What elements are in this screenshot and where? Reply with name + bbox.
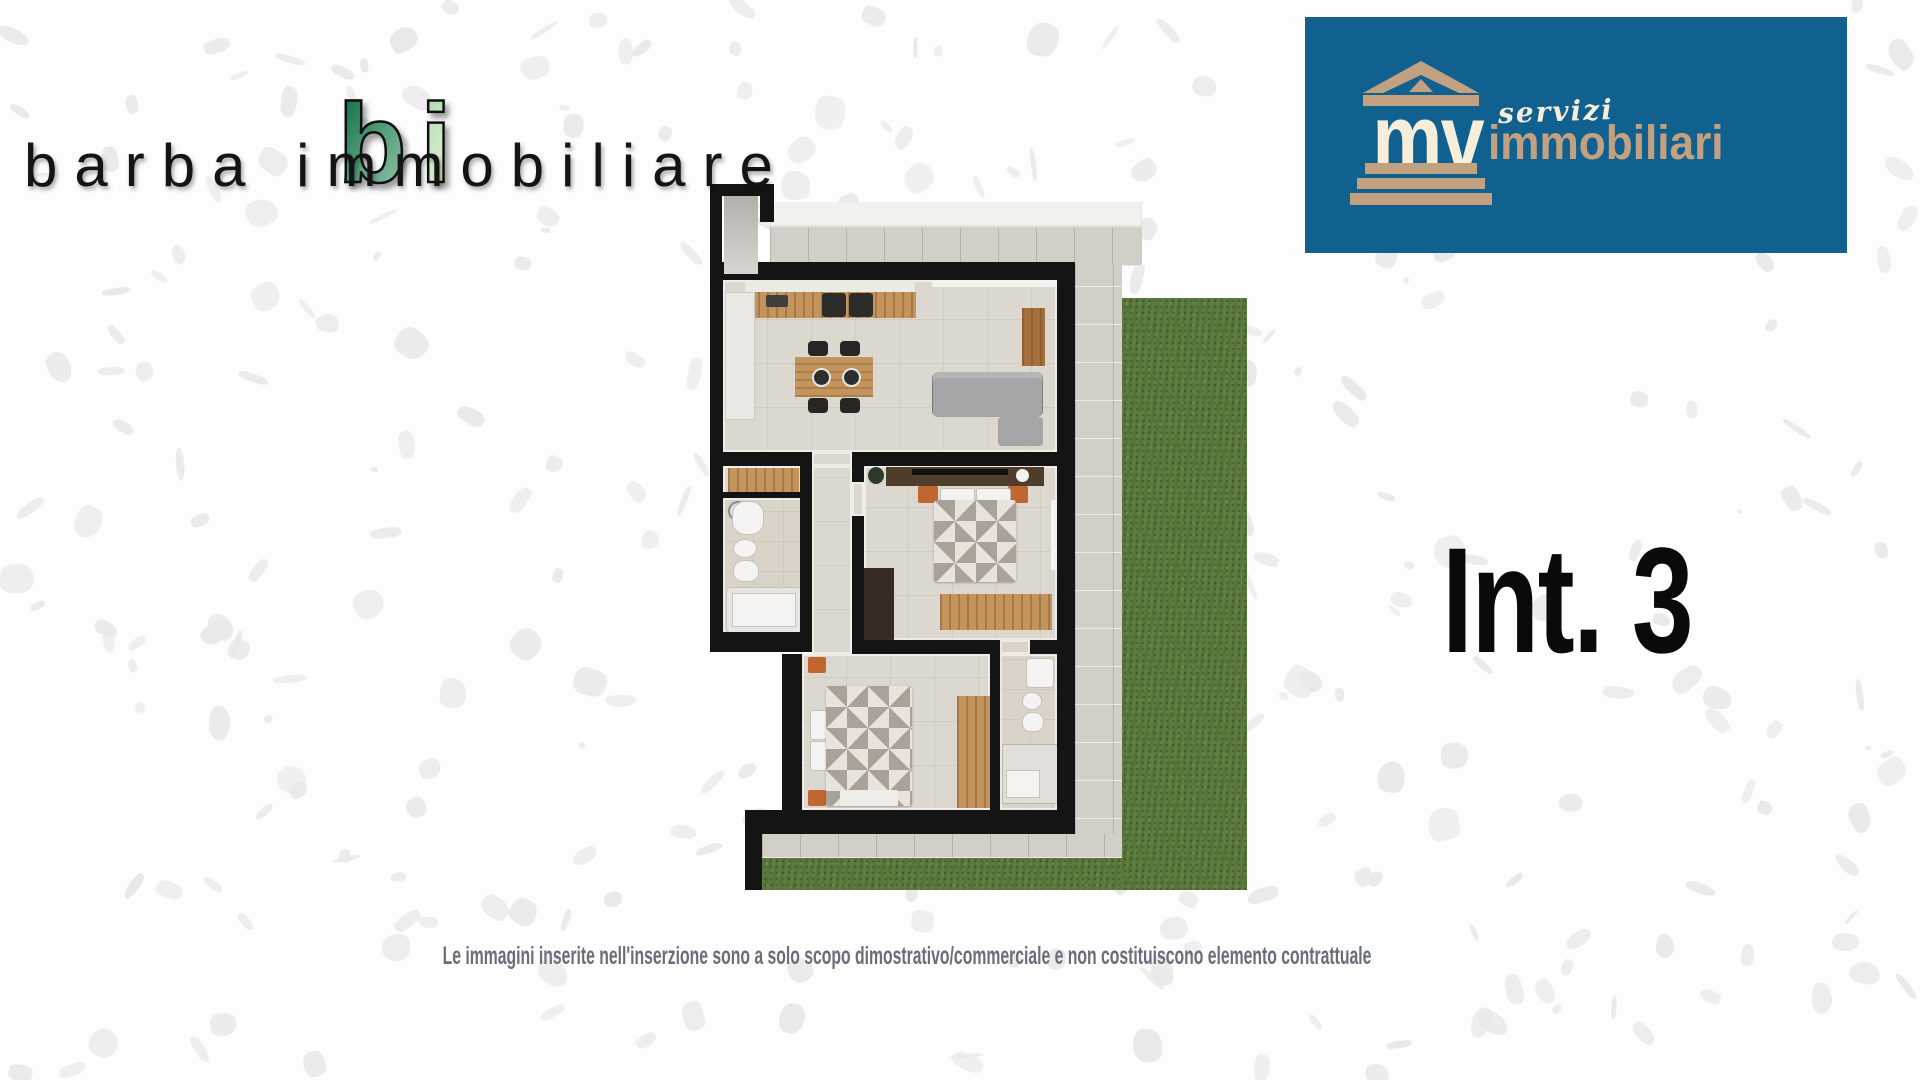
speckle <box>132 359 155 383</box>
shelf-unit <box>1022 308 1045 366</box>
speckle <box>390 871 407 882</box>
speckle <box>1100 25 1120 51</box>
speckle <box>1004 165 1021 179</box>
speckle <box>506 485 534 516</box>
speckle <box>629 38 653 59</box>
speckle <box>641 530 661 550</box>
master-bed <box>934 500 1016 582</box>
speckle <box>253 801 275 821</box>
speckle <box>570 843 598 868</box>
speckle <box>569 664 609 701</box>
speckle <box>1736 509 1741 514</box>
speckle <box>540 228 551 234</box>
pillow <box>810 710 827 740</box>
door-opening <box>812 452 852 466</box>
speckle <box>1849 460 1864 477</box>
speckle <box>1873 541 1890 560</box>
speckle <box>1339 373 1370 403</box>
page: bi barba immobiliare mv servizi immobili… <box>0 0 1920 1080</box>
speckle <box>670 825 697 840</box>
speckle <box>86 1025 122 1061</box>
speckle <box>316 313 340 333</box>
speckle <box>1419 288 1447 313</box>
speckle <box>297 298 317 320</box>
speckle <box>1845 801 1874 836</box>
speckle <box>1602 684 1634 699</box>
speckle <box>121 871 147 901</box>
nightstand <box>808 790 826 806</box>
speckle <box>101 286 129 297</box>
speckle <box>236 912 256 933</box>
speckle <box>7 1062 34 1080</box>
speckle <box>418 916 438 928</box>
speckle <box>603 890 623 908</box>
speckle <box>1630 391 1648 409</box>
speckle <box>533 202 562 230</box>
speckle <box>371 250 382 262</box>
speckle <box>392 907 423 935</box>
speckle <box>680 1000 708 1033</box>
wall <box>710 262 723 652</box>
wall <box>1057 262 1075 834</box>
bathroom1-toilet <box>733 560 759 582</box>
speckle <box>133 700 146 714</box>
speckle <box>1563 926 1594 953</box>
speckle <box>329 62 356 82</box>
speckle <box>1831 932 1860 953</box>
speckle <box>105 322 127 346</box>
wall <box>723 492 802 498</box>
speckle <box>910 908 936 934</box>
speckle <box>9 102 31 120</box>
speckle <box>879 120 894 134</box>
speckle <box>1376 490 1396 503</box>
speckle <box>543 453 564 475</box>
speckle <box>1293 366 1303 377</box>
speckle <box>127 633 148 651</box>
unit-label: Int. 3 <box>1442 525 1692 675</box>
speckle <box>1191 75 1216 97</box>
speckle <box>539 1003 566 1023</box>
speckle <box>1656 934 1674 958</box>
kitchen-backsplash <box>745 281 915 292</box>
tv <box>912 469 1008 475</box>
bathtub <box>726 587 802 633</box>
speckle <box>170 243 187 266</box>
speckle <box>1440 742 1469 770</box>
speckle <box>439 677 468 710</box>
speckle <box>1865 745 1871 750</box>
speckle <box>203 875 225 894</box>
wall <box>800 452 812 652</box>
barba-wordmark: barba immobiliare <box>24 131 790 200</box>
speckle <box>1865 62 1896 78</box>
master-wardrobe <box>864 568 894 640</box>
speckle <box>1386 1039 1411 1049</box>
speckle <box>1740 778 1757 805</box>
speckle <box>246 557 270 584</box>
speckle <box>1376 760 1407 795</box>
dining-chair <box>808 341 828 356</box>
speckle <box>559 104 571 111</box>
entry-vestibule <box>724 196 758 274</box>
patio-bottom <box>762 834 1122 858</box>
speckle <box>28 598 46 612</box>
speckle <box>551 566 565 583</box>
dining-chair <box>840 341 860 356</box>
speckle <box>725 0 757 21</box>
place-setting-right <box>842 368 861 387</box>
bedroom2-wardrobe <box>957 696 990 808</box>
speckle <box>381 933 410 961</box>
speckle <box>619 38 634 64</box>
speckle <box>634 1030 658 1051</box>
speckle <box>1895 203 1920 234</box>
speckle <box>416 757 442 782</box>
speckle <box>1531 976 1558 1007</box>
speckle <box>1843 909 1859 926</box>
speckle <box>622 349 647 371</box>
mv-tagline-main: immobiliari <box>1488 120 1724 168</box>
speckle <box>202 35 232 57</box>
speckle <box>359 57 369 73</box>
speckle <box>676 485 693 517</box>
bedroom2-bed <box>826 686 912 806</box>
speckle <box>0 22 32 49</box>
speckle <box>775 1000 807 1036</box>
speckle <box>189 511 211 530</box>
speckle <box>273 673 308 686</box>
door-opening <box>1000 640 1030 654</box>
speckle <box>892 124 916 151</box>
speckle <box>1854 678 1866 711</box>
speckle <box>349 585 388 623</box>
sofa-chaise <box>998 417 1043 446</box>
speckle <box>0 564 34 594</box>
speckle <box>1366 1064 1389 1080</box>
speckle <box>97 366 124 376</box>
speckle <box>477 891 512 924</box>
speckle <box>1872 754 1910 791</box>
speckle <box>1781 417 1812 440</box>
speckle <box>111 416 136 437</box>
speckle <box>1882 153 1918 184</box>
wall <box>723 452 1057 466</box>
speckle <box>1550 1003 1563 1015</box>
garden-grass-right <box>1122 298 1247 890</box>
speckle <box>397 430 417 460</box>
bathroom1-bidet <box>733 539 757 558</box>
speckle <box>1307 1013 1324 1032</box>
kitchen-sink <box>766 295 788 307</box>
speckle <box>1802 495 1833 517</box>
cooktop-right <box>849 293 873 317</box>
speckle <box>728 41 742 57</box>
speckle <box>43 349 73 385</box>
hall-wardrobe <box>728 468 799 493</box>
speckle <box>506 624 548 666</box>
sofa <box>932 372 1043 417</box>
dining-chair <box>808 398 828 413</box>
speckle <box>1316 811 1338 829</box>
cooktop-left <box>822 293 846 317</box>
speckle <box>279 85 298 117</box>
speckle <box>1848 959 1882 986</box>
speckle <box>1687 400 1698 418</box>
bathroom2-bidet <box>1022 692 1042 710</box>
speckle <box>1701 684 1734 712</box>
speckle <box>934 46 943 57</box>
speckle <box>1630 1019 1659 1049</box>
speckle <box>588 12 608 29</box>
speckle <box>275 51 307 67</box>
speckle <box>560 908 575 932</box>
speckle <box>1739 943 1757 968</box>
kitchen-tall-cabinet <box>725 292 755 420</box>
bathroom2-sink <box>1026 658 1054 688</box>
living-window <box>932 280 1057 287</box>
speckle <box>734 80 755 101</box>
speckle <box>188 1035 212 1065</box>
speckle <box>368 207 397 224</box>
speckle <box>237 369 269 386</box>
place-setting-left <box>812 368 831 387</box>
floor-plan <box>700 180 1260 895</box>
shower-tray <box>1006 770 1040 798</box>
speckle <box>1115 137 1136 150</box>
dining-table <box>795 357 873 397</box>
speckle <box>57 1060 87 1079</box>
bathroom2-toilet <box>1022 712 1044 732</box>
speckle <box>230 69 249 81</box>
speckle <box>606 695 636 707</box>
speckle <box>1469 924 1481 942</box>
speckle <box>1610 996 1616 1020</box>
speckle <box>859 3 888 30</box>
speckle <box>154 877 185 902</box>
speckle <box>149 268 169 284</box>
speckle <box>530 19 559 40</box>
bathroom1-sink <box>732 501 764 535</box>
speckle <box>301 1048 327 1078</box>
mv-banner: mv servizi immobiliari <box>1305 17 1847 253</box>
speckle <box>209 1012 237 1038</box>
speckle <box>1810 981 1833 1014</box>
speckle <box>1502 973 1526 1006</box>
speckle <box>1559 959 1575 978</box>
speckle <box>404 795 427 818</box>
speckle <box>246 277 286 316</box>
speckle <box>1025 20 1061 58</box>
speckle <box>385 23 421 56</box>
speckle <box>1132 1029 1162 1063</box>
speckle <box>1158 916 1189 942</box>
speckle <box>455 402 488 430</box>
speckle <box>1402 277 1409 285</box>
door-opening <box>852 482 864 516</box>
speckle <box>244 197 281 229</box>
speckle <box>126 658 139 673</box>
speckle <box>1850 0 1865 14</box>
speckle <box>578 741 587 750</box>
speckle <box>225 636 252 663</box>
pillow <box>810 741 827 771</box>
speckle <box>506 894 542 929</box>
speckle <box>1261 328 1277 344</box>
dining-chair <box>840 398 860 413</box>
wall <box>710 262 1075 280</box>
speckle <box>624 478 650 504</box>
speckle <box>1883 36 1918 74</box>
terrace-top <box>770 228 1142 266</box>
speckle <box>1278 691 1290 701</box>
speckle <box>263 714 274 725</box>
wall <box>782 654 802 814</box>
speckle <box>1154 16 1181 45</box>
speckle <box>175 448 186 481</box>
speckle <box>1254 1054 1270 1080</box>
temple-step-1 <box>1365 163 1477 174</box>
speckle <box>1029 148 1038 182</box>
speckle <box>1833 851 1862 879</box>
speckle <box>1876 245 1892 274</box>
speckle <box>1763 718 1784 740</box>
speckle <box>1558 793 1584 813</box>
temple-step-2 <box>1357 178 1485 189</box>
speckle <box>391 323 433 364</box>
temple-step-3 <box>1350 193 1492 205</box>
hallway-floor <box>812 466 852 654</box>
speckle <box>1504 871 1524 889</box>
speckle <box>1763 317 1781 335</box>
speckle <box>370 525 403 539</box>
plant <box>868 467 884 484</box>
speckle <box>70 502 107 542</box>
speckle <box>15 494 47 521</box>
speckle <box>1425 806 1461 843</box>
speckle <box>1756 798 1775 816</box>
garden-grass-bottom <box>762 858 1122 890</box>
speckle <box>1329 397 1362 431</box>
speckle <box>1403 560 1415 569</box>
wall <box>990 654 1000 810</box>
wall <box>710 632 812 652</box>
nightstand <box>808 657 826 673</box>
terrace-right <box>1075 264 1122 857</box>
speckle <box>913 37 918 58</box>
speckle <box>1685 879 1718 899</box>
terrace-top-wall <box>770 202 1142 228</box>
speckle <box>1895 972 1919 1000</box>
disclaimer-text: Le immagini inserite nell'inserzione son… <box>438 942 1377 971</box>
speckle <box>811 93 848 133</box>
bed-bench <box>940 594 1052 630</box>
speckle <box>1698 987 1721 1006</box>
speckle <box>518 53 552 83</box>
speckle <box>371 466 379 472</box>
speckle <box>208 705 230 740</box>
speckle <box>440 0 461 18</box>
speckle <box>125 94 139 114</box>
bed-rug <box>840 790 898 806</box>
sphere-lamp <box>1016 469 1029 482</box>
speckle <box>1335 687 1345 701</box>
speckle <box>515 256 533 272</box>
